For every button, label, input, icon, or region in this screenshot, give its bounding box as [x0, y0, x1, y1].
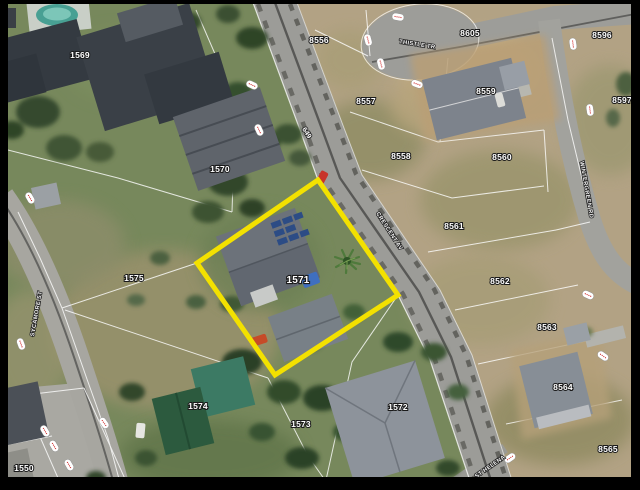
lot-label-8559: 8559: [476, 86, 496, 96]
lot-label-8597: 8597: [612, 95, 632, 105]
lot-label-1573: 1573: [291, 419, 311, 429]
lot-label-8556: 8556: [309, 35, 329, 45]
lot-label-8561: 8561: [444, 221, 464, 231]
lot-label-1570: 1570: [210, 164, 230, 174]
lot-label-1569: 1569: [70, 50, 90, 60]
lot-label-8564: 8564: [553, 382, 573, 392]
lot-label-8563: 8563: [537, 322, 557, 332]
lot-label-8565: 8565: [598, 444, 618, 454]
lot-label-1550: 1550: [14, 463, 34, 473]
lot-label-8605: 8605: [460, 28, 480, 38]
lot-label-8560: 8560: [492, 152, 512, 162]
map-canvas: CRESCENT AVSYCAMORE STWINTERGREEN RDTHIS…: [0, 0, 640, 490]
white-car: [135, 423, 145, 439]
lot-label-8557: 8557: [356, 96, 376, 106]
lot-label-8596: 8596: [592, 30, 612, 40]
lot-label-8558: 8558: [391, 151, 411, 161]
lot-label-1571: 1571: [286, 275, 309, 286]
lot-label-1572: 1572: [388, 402, 408, 412]
lot-label-1575: 1575: [124, 273, 144, 283]
aerial-map[interactable]: CRESCENT AVSYCAMORE STWINTERGREEN RDTHIS…: [0, 0, 640, 490]
lot-label-8562: 8562: [490, 276, 510, 286]
lot-label-1574: 1574: [188, 401, 208, 411]
